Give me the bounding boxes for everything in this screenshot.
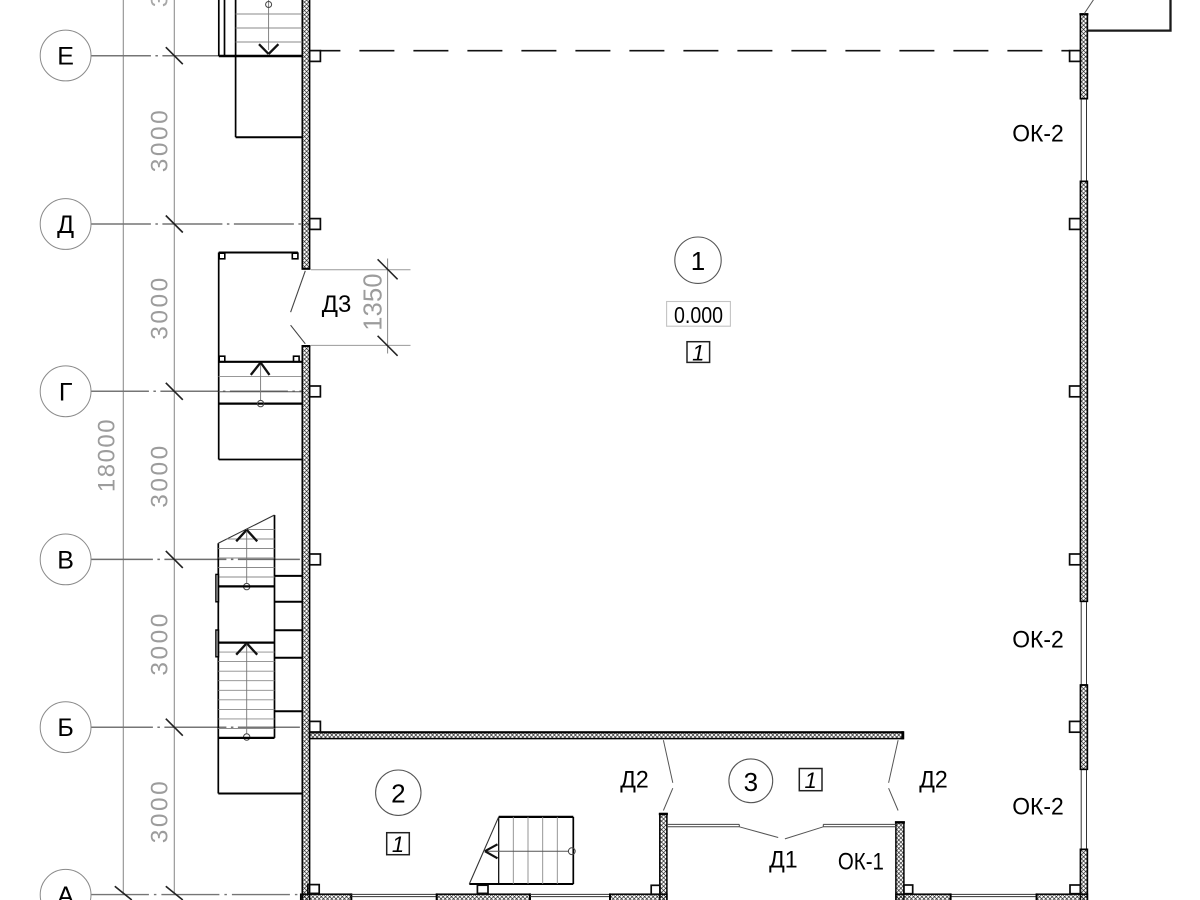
svg-text:3000: 3000 — [147, 779, 174, 844]
svg-text:Д2: Д2 — [620, 767, 649, 794]
svg-text:2: 2 — [391, 779, 405, 809]
svg-text:3000: 3000 — [147, 611, 174, 676]
svg-text:1350: 1350 — [360, 273, 388, 331]
svg-text:3000: 3000 — [147, 443, 174, 508]
svg-text:Д1: Д1 — [769, 847, 798, 874]
svg-text:ОК-2: ОК-2 — [1012, 121, 1064, 148]
svg-text:3000: 3000 — [147, 275, 174, 340]
svg-text:Г: Г — [59, 378, 73, 406]
svg-text:3000: 3000 — [147, 0, 174, 7]
svg-text:Д3: Д3 — [322, 291, 352, 318]
svg-text:Д: Д — [57, 211, 74, 239]
svg-text:А: А — [57, 882, 74, 900]
svg-text:1: 1 — [804, 768, 816, 793]
svg-text:1: 1 — [692, 341, 704, 366]
svg-text:Е: Е — [57, 43, 74, 71]
svg-text:3000: 3000 — [147, 108, 174, 173]
svg-text:0.000: 0.000 — [674, 302, 723, 328]
svg-text:3: 3 — [744, 767, 758, 797]
svg-text:ОК-2: ОК-2 — [1012, 627, 1064, 654]
svg-text:В: В — [57, 546, 74, 574]
svg-text:1: 1 — [691, 246, 705, 276]
svg-text:Б: Б — [57, 714, 73, 742]
svg-text:18000: 18000 — [94, 418, 121, 492]
svg-text:Д2: Д2 — [919, 767, 948, 794]
svg-text:1: 1 — [392, 832, 404, 857]
svg-text:ОК-2: ОК-2 — [1012, 794, 1064, 821]
svg-text:ОК-1: ОК-1 — [838, 849, 884, 876]
